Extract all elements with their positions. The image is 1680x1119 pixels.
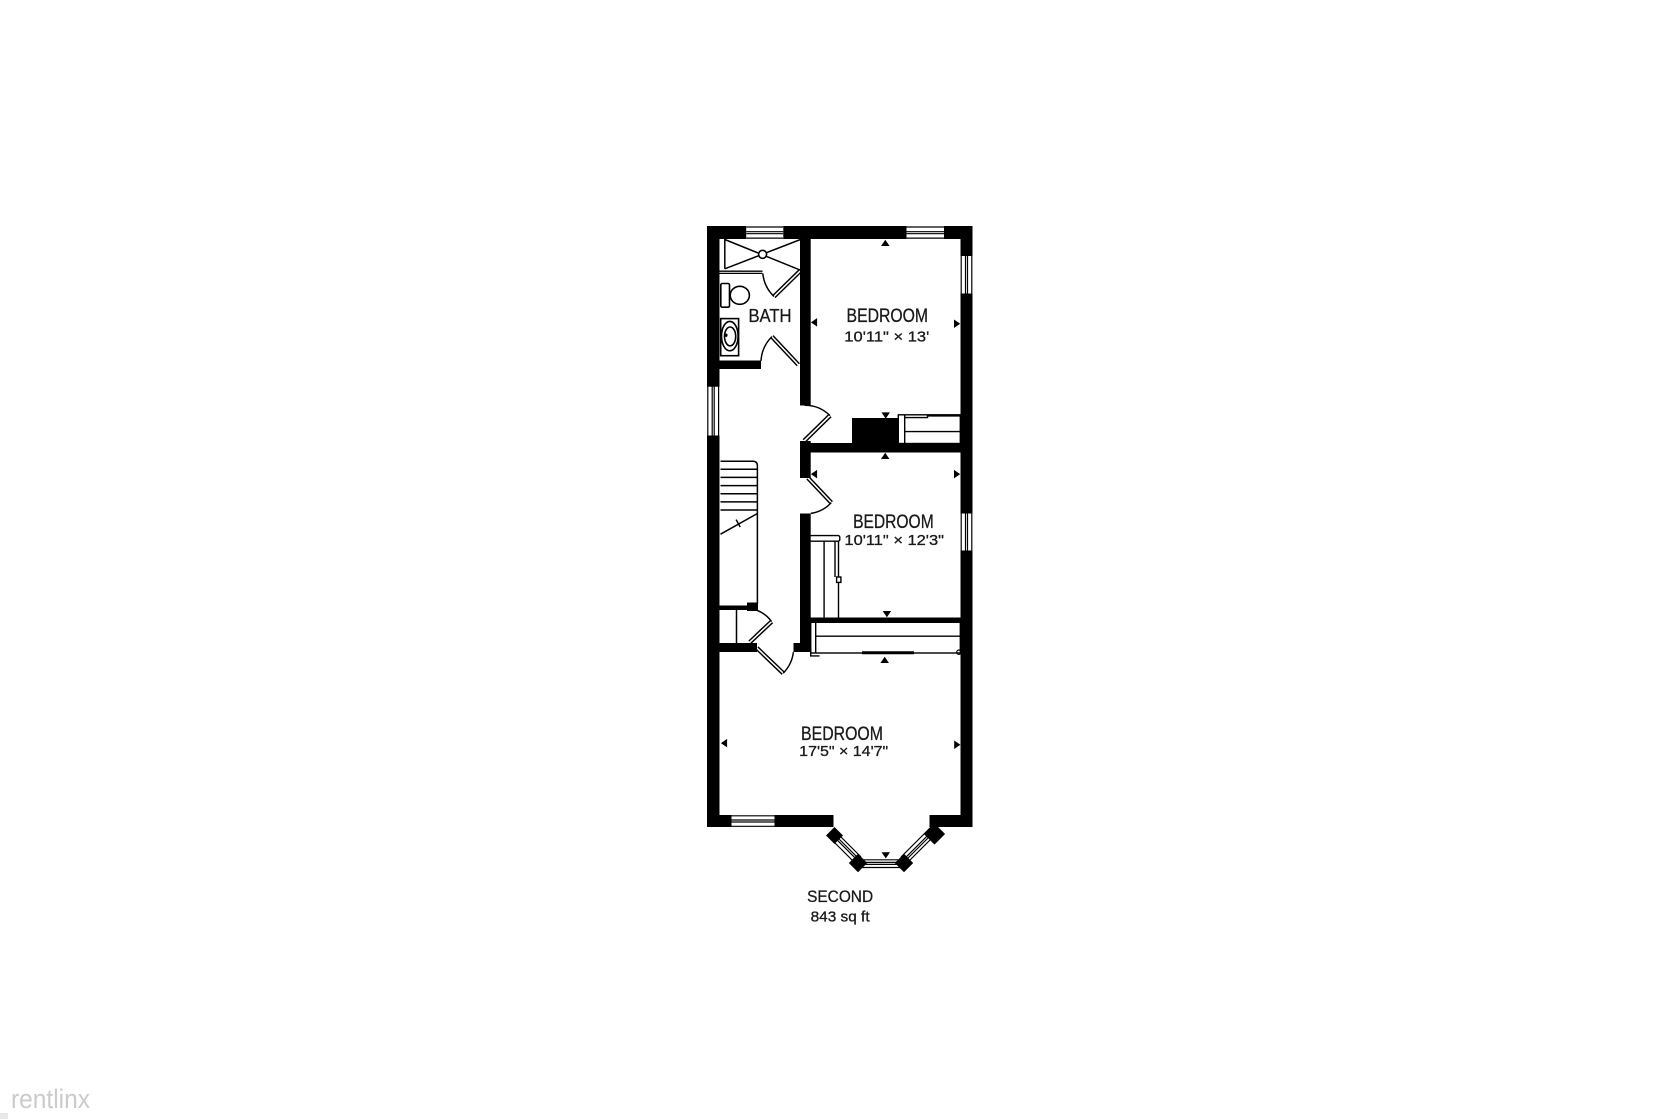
svg-text:10'11" × 12'3": 10'11" × 12'3": [844, 532, 944, 549]
svg-text:rentlinx: rentlinx: [11, 1084, 90, 1114]
svg-text:BEDROOM: BEDROOM: [801, 724, 883, 745]
svg-text:BATH: BATH: [749, 305, 792, 326]
svg-text:SECOND: SECOND: [807, 887, 873, 906]
svg-text:17'5" × 14'7": 17'5" × 14'7": [799, 743, 888, 760]
svg-text:BEDROOM: BEDROOM: [847, 306, 929, 327]
svg-text:843 sq ft: 843 sq ft: [811, 909, 871, 926]
svg-text:BEDROOM: BEDROOM: [853, 512, 934, 533]
svg-text:10'11" × 13': 10'11" × 13': [844, 328, 929, 345]
